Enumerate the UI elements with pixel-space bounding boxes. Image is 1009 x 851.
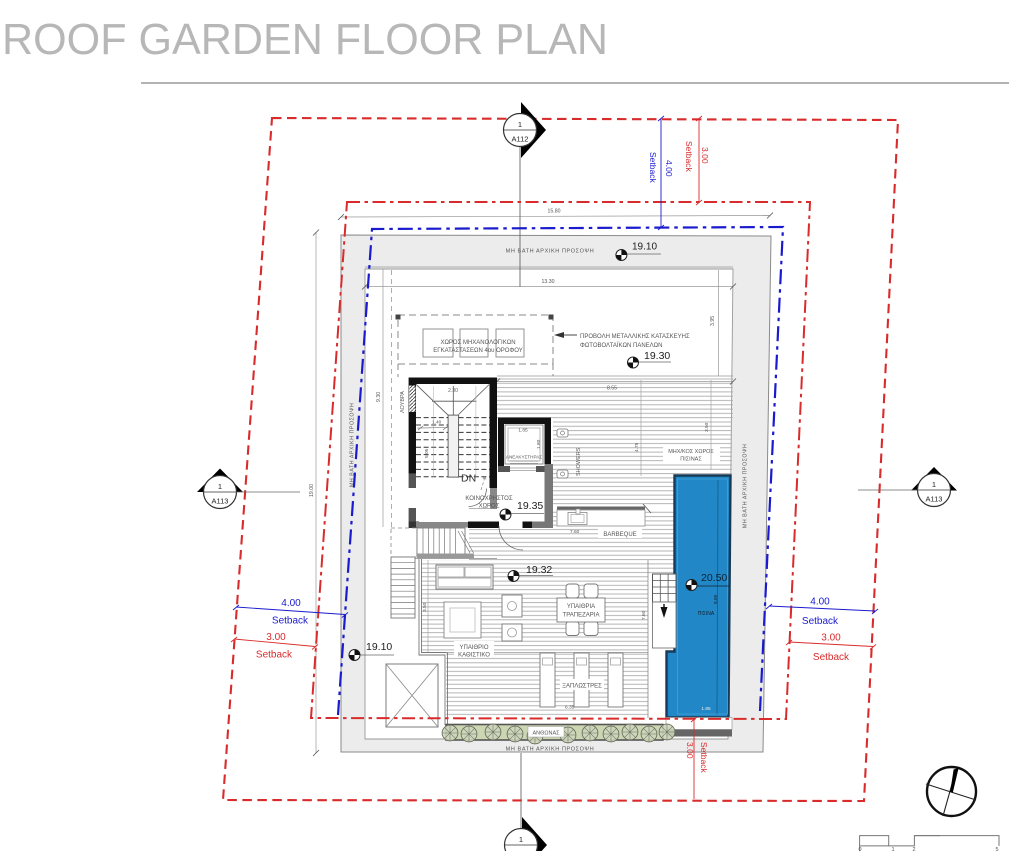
svg-text:2.30: 2.30 [448, 388, 458, 394]
svg-text:4.00: 4.00 [810, 597, 830, 608]
svg-text:Setback: Setback [699, 742, 709, 773]
svg-text:ΚΑΘΙΣΤΙΚΟ: ΚΑΘΙΣΤΙΚΟ [458, 653, 490, 659]
svg-text:1.85: 1.85 [701, 706, 711, 712]
svg-text:19.30: 19.30 [644, 350, 670, 362]
svg-text:ΧΩΡΟΣ ΜΗΧΑΝΟΛΟΓΙΚΩΝ: ΧΩΡΟΣ ΜΗΧΑΝΟΛΟΓΙΚΩΝ [440, 340, 515, 346]
svg-text:A113: A113 [212, 497, 229, 506]
svg-text:ΦΩΤΟΒΟΛΤΑΪΚΩΝ ΠΑΝΕΛΩΝ: ΦΩΤΟΒΟΛΤΑΪΚΩΝ ΠΑΝΕΛΩΝ [580, 342, 663, 349]
svg-text:19.10: 19.10 [366, 641, 392, 653]
svg-text:ΜΗ ΒΑΤΗ ΑΡΧΙΚΗ ΠΡΟΣΟΨΗ: ΜΗ ΒΑΤΗ ΑΡΧΙΚΗ ΠΡΟΣΟΨΗ [506, 249, 595, 255]
svg-text:0: 0 [858, 847, 861, 851]
svg-text:20.50: 20.50 [701, 572, 727, 584]
svg-text:3.00: 3.00 [266, 632, 286, 643]
svg-text:7.60: 7.60 [641, 610, 647, 620]
svg-text:ΥΠΑΙΘΡΙΟ: ΥΠΑΙΘΡΙΟ [459, 645, 488, 651]
svg-text:ΜΗ ΒΑΤΗ ΑΡΧΙΚΗ ΠΡΟΣΟΨΗ: ΜΗ ΒΑΤΗ ΑΡΧΙΚΗ ΠΡΟΣΟΨΗ [506, 747, 595, 753]
svg-text:4.75: 4.75 [634, 442, 640, 452]
svg-text:ΥΠΑΙΘΡΙΑ: ΥΠΑΙΘΡΙΑ [567, 604, 595, 610]
svg-text:1: 1 [891, 847, 894, 851]
svg-text:5.05: 5.05 [424, 448, 430, 458]
svg-text:1.40: 1.40 [432, 420, 442, 426]
svg-text:1: 1 [932, 480, 936, 489]
svg-text:1.80: 1.80 [536, 439, 542, 449]
svg-text:ΞΑΠΛΩΣΤΡΕΣ: ΞΑΠΛΩΣΤΡΕΣ [562, 684, 602, 690]
svg-text:3.50: 3.50 [422, 602, 428, 612]
svg-text:ΛΟΥΒΡΑ: ΛΟΥΒΡΑ [400, 391, 406, 413]
svg-text:6.35: 6.35 [565, 705, 575, 711]
svg-text:7.60: 7.60 [570, 529, 580, 535]
svg-text:A112: A112 [512, 135, 529, 144]
svg-text:ΜΗ ΒΑΤΗ ΑΡΧΙΚΗ ΠΡΟΣΟΨΗ: ΜΗ ΒΑΤΗ ΑΡΧΙΚΗ ΠΡΟΣΟΨΗ [743, 444, 749, 528]
svg-text:ΠΡΟΒΟΛΗ ΜΕΤΑΛΛΙΚΗΣ ΚΑΤΑΣΚΕΥΗΣ: ΠΡΟΒΟΛΗ ΜΕΤΑΛΛΙΚΗΣ ΚΑΤΑΣΚΕΥΗΣ [580, 334, 690, 340]
svg-text:1: 1 [518, 120, 522, 129]
svg-text:Setback: Setback [648, 152, 658, 183]
svg-text:3.00: 3.00 [685, 742, 695, 759]
svg-text:ΑΝΘΩΝΑΣ: ΑΝΘΩΝΑΣ [532, 731, 560, 737]
svg-text:19.32: 19.32 [526, 564, 552, 576]
svg-text:ΚΟΙΝΟΧΡΗΣΤΟΣ: ΚΟΙΝΟΧΡΗΣΤΟΣ [465, 496, 512, 502]
svg-text:Setback: Setback [272, 616, 309, 627]
svg-text:1: 1 [519, 835, 523, 844]
svg-text:9.30: 9.30 [376, 392, 382, 402]
svg-text:Setback: Setback [813, 652, 850, 663]
svg-text:ΠΙΣΙΝΑ: ΠΙΣΙΝΑ [698, 611, 715, 617]
svg-text:5: 5 [995, 847, 998, 851]
svg-text:ΧΩΡΟΣ: ΧΩΡΟΣ [479, 504, 500, 510]
svg-text:3.00: 3.00 [821, 633, 841, 644]
svg-text:19.10: 19.10 [632, 242, 657, 253]
svg-text:BARBEQUE: BARBEQUE [603, 532, 636, 538]
svg-text:3.50: 3.50 [704, 422, 710, 432]
svg-text:3.00: 3.00 [700, 147, 710, 164]
svg-text:3.95: 3.95 [710, 316, 716, 326]
svg-text:Setback: Setback [802, 616, 839, 627]
svg-text:Setback: Setback [256, 650, 293, 661]
svg-text:8.85: 8.85 [713, 594, 719, 604]
svg-text:4.00: 4.00 [281, 598, 301, 609]
svg-text:2: 2 [912, 847, 915, 851]
svg-text:A113: A113 [926, 495, 943, 504]
svg-text:13.30: 13.30 [542, 279, 555, 285]
svg-text:19.35: 19.35 [517, 500, 543, 512]
svg-text:4.00: 4.00 [664, 160, 674, 177]
svg-text:SHOWERS: SHOWERS [576, 447, 582, 476]
svg-text:19.00: 19.00 [309, 484, 315, 497]
svg-text:ΤΡΑΠΕΖΑΡΙΑ: ΤΡΑΠΕΖΑΡΙΑ [563, 613, 600, 619]
svg-text:1.85: 1.85 [518, 428, 528, 434]
svg-text:1: 1 [218, 482, 222, 491]
svg-text:8.55: 8.55 [607, 386, 617, 392]
svg-text:ΠΙΣΙΝΑΣ: ΠΙΣΙΝΑΣ [680, 457, 702, 463]
svg-text:ΜΗΧ/ΚΟΣ ΧΩΡΟΣ: ΜΗΧ/ΚΟΣ ΧΩΡΟΣ [668, 449, 714, 455]
svg-text:DN: DN [461, 473, 476, 485]
svg-text:Setback: Setback [684, 141, 694, 172]
svg-text:ΑΝΕΛΚΥΣΤΗΡΑΣ: ΑΝΕΛΚΥΣΤΗΡΑΣ [506, 455, 542, 460]
svg-text:ROOF GARDEN FLOOR PLAN: ROOF GARDEN FLOOR PLAN [2, 15, 608, 64]
svg-text:ΕΓΚΑΤΑΣΤΑΣΕΩΝ 4ου ΟΡΟΦΟΥ: ΕΓΚΑΤΑΣΤΑΣΕΩΝ 4ου ΟΡΟΦΟΥ [433, 348, 522, 354]
svg-text:15.80: 15.80 [548, 209, 561, 215]
